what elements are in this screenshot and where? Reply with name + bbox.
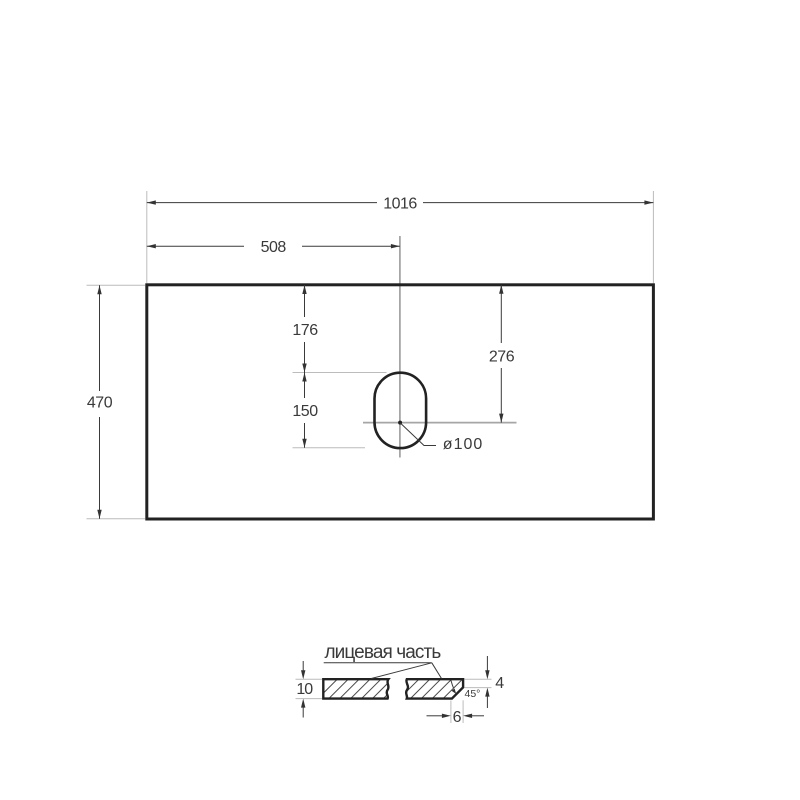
svg-text:276: 276 [489, 348, 515, 365]
svg-text:10: 10 [296, 681, 313, 698]
svg-text:1016: 1016 [383, 195, 417, 212]
svg-text:лицевая часть: лицевая часть [325, 642, 442, 663]
svg-text:176: 176 [292, 322, 318, 339]
svg-text:6: 6 [453, 709, 462, 726]
svg-text:470: 470 [87, 395, 113, 412]
svg-text:45°: 45° [465, 688, 481, 700]
svg-text:ø100: ø100 [443, 436, 483, 453]
svg-text:150: 150 [292, 403, 318, 420]
svg-text:4: 4 [495, 675, 504, 692]
svg-text:508: 508 [261, 239, 287, 256]
